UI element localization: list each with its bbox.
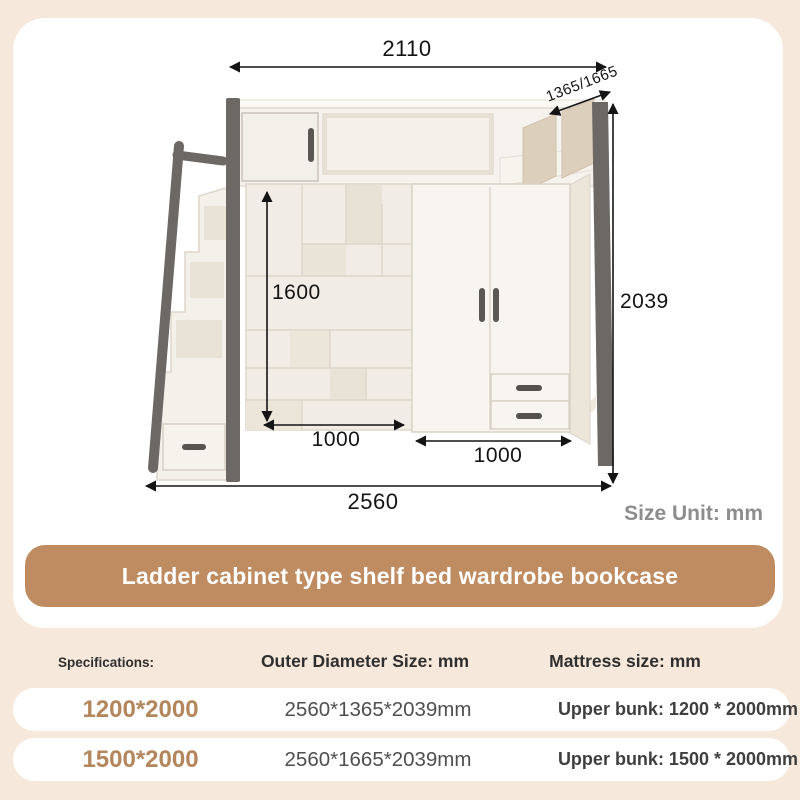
table-header-outer-size: Outer Diameter Size: mm bbox=[230, 651, 500, 672]
product-title: Ladder cabinet type shelf bed wardrobe b… bbox=[122, 563, 678, 590]
size-unit-note: Size Unit: mm bbox=[624, 502, 763, 526]
cabinet-door-handle bbox=[308, 128, 314, 162]
mattress-size-value: Upper bunk: 1200 * 2000mm bbox=[553, 688, 800, 731]
table-header-specifications: Specifications: bbox=[58, 655, 154, 670]
dim-label-base-width: 2560 bbox=[348, 489, 399, 515]
loft-bed-upper-bunk bbox=[232, 99, 605, 192]
wardrobe bbox=[412, 174, 590, 444]
furniture-illustration bbox=[0, 0, 800, 540]
wardrobe-door-handle-left bbox=[479, 288, 485, 322]
wardrobe-door-handle-right bbox=[493, 288, 499, 322]
bed-post-right bbox=[592, 102, 614, 466]
table-header-mattress-size: Mattress size: mm bbox=[510, 651, 740, 672]
dim-label-wardrobe-width: 1000 bbox=[474, 444, 523, 468]
spec-value: 1200*2000 bbox=[58, 688, 223, 731]
dim-label-top-width: 2110 bbox=[382, 36, 431, 62]
bookcase bbox=[246, 184, 416, 430]
dim-label-bookcase-width: 1000 bbox=[312, 428, 361, 452]
table-row: 1500*2000 2560*1665*2039mm Upper bunk: 1… bbox=[13, 738, 790, 781]
outer-size-value: 2560*1665*2039mm bbox=[253, 738, 503, 781]
outer-size-value: 2560*1365*2039mm bbox=[253, 688, 503, 731]
bed-post-left bbox=[226, 98, 240, 482]
title-banner: Ladder cabinet type shelf bed wardrobe b… bbox=[25, 545, 775, 607]
mattress-size-value: Upper bunk: 1500 * 2000mm bbox=[553, 738, 800, 781]
dim-label-total-height: 2039 bbox=[620, 290, 669, 314]
stair-drawer bbox=[163, 424, 225, 470]
wardrobe-drawers bbox=[491, 374, 569, 429]
table-row: 1200*2000 2560*1365*2039mm Upper bunk: 1… bbox=[13, 688, 790, 731]
upper-open-shelf bbox=[322, 113, 494, 175]
upper-cabinet bbox=[242, 113, 318, 181]
spec-value: 1500*2000 bbox=[58, 738, 223, 781]
dim-label-shelf-height: 1600 bbox=[272, 281, 321, 305]
